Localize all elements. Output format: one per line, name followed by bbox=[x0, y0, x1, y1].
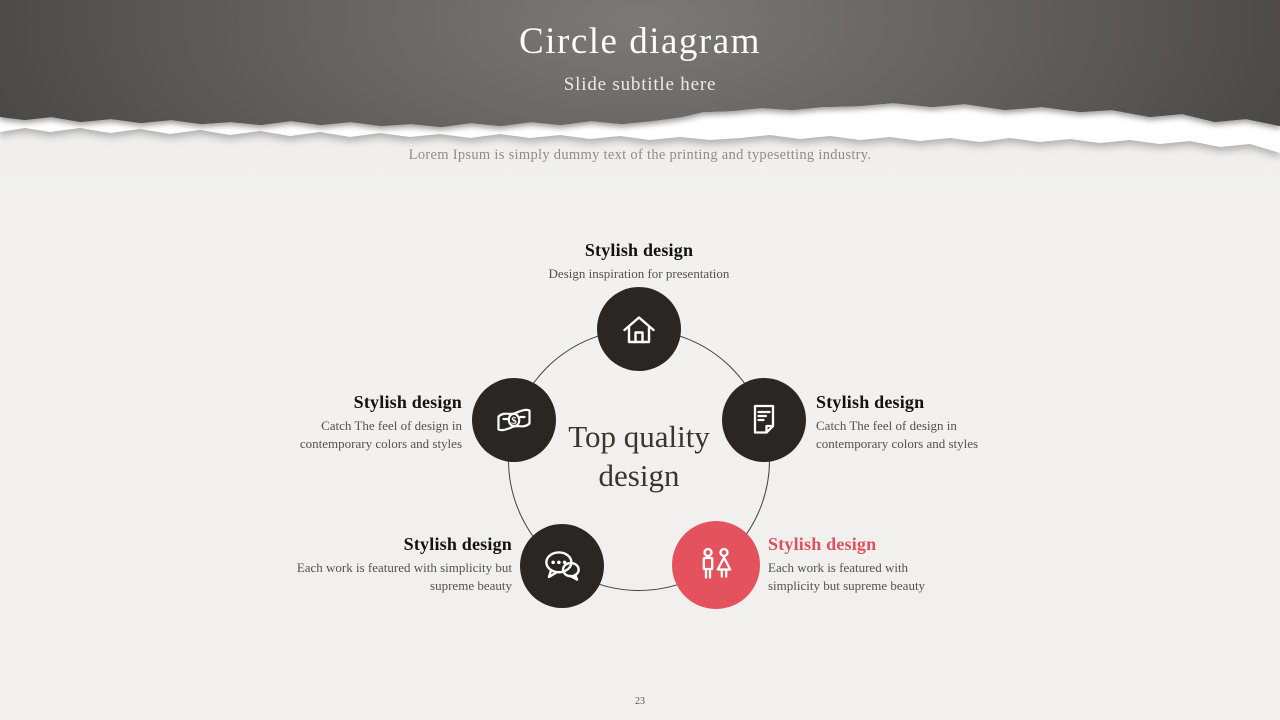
node-top bbox=[597, 287, 681, 371]
people-icon bbox=[692, 541, 740, 589]
svg-text:$: $ bbox=[511, 415, 517, 427]
node-description: Design inspiration for presentation bbox=[439, 265, 839, 283]
node-label-right: Stylish design Catch The feel of design … bbox=[816, 392, 1026, 452]
node-description: Catch The feel of design in contemporary… bbox=[816, 417, 1026, 452]
node-bottom-right bbox=[672, 521, 760, 609]
document-icon bbox=[740, 396, 788, 444]
node-label-left: Stylish design Catch The feel of design … bbox=[255, 392, 462, 452]
node-left: $ bbox=[472, 378, 556, 462]
node-description: Each work is featured with simplicity bu… bbox=[768, 559, 963, 594]
node-title: Stylish design bbox=[816, 392, 1026, 413]
center-label: Top quality design bbox=[524, 417, 754, 495]
node-title: Stylish design bbox=[272, 534, 512, 555]
node-label-bottom-left: Stylish design Each work is featured wit… bbox=[272, 534, 512, 594]
node-label-top: Stylish design Design inspiration for pr… bbox=[439, 240, 839, 283]
slide: Circle diagram Slide subtitle here Lorem… bbox=[0, 0, 1280, 720]
node-label-bottom-right: Stylish design Each work is featured wit… bbox=[768, 534, 963, 594]
node-description: Each work is featured with simplicity bu… bbox=[272, 559, 512, 594]
page-number: 23 bbox=[0, 696, 1280, 707]
chat-icon bbox=[537, 541, 587, 591]
node-right bbox=[722, 378, 806, 462]
node-description: Catch The feel of design in contemporary… bbox=[255, 417, 462, 452]
node-title: Stylish design bbox=[255, 392, 462, 413]
money-icon: $ bbox=[490, 396, 538, 444]
home-icon bbox=[615, 305, 663, 353]
node-title: Stylish design bbox=[439, 240, 839, 261]
circle-diagram: Top quality design $ bbox=[0, 0, 1280, 720]
node-title: Stylish design bbox=[768, 534, 963, 555]
node-bottom-left bbox=[520, 524, 604, 608]
